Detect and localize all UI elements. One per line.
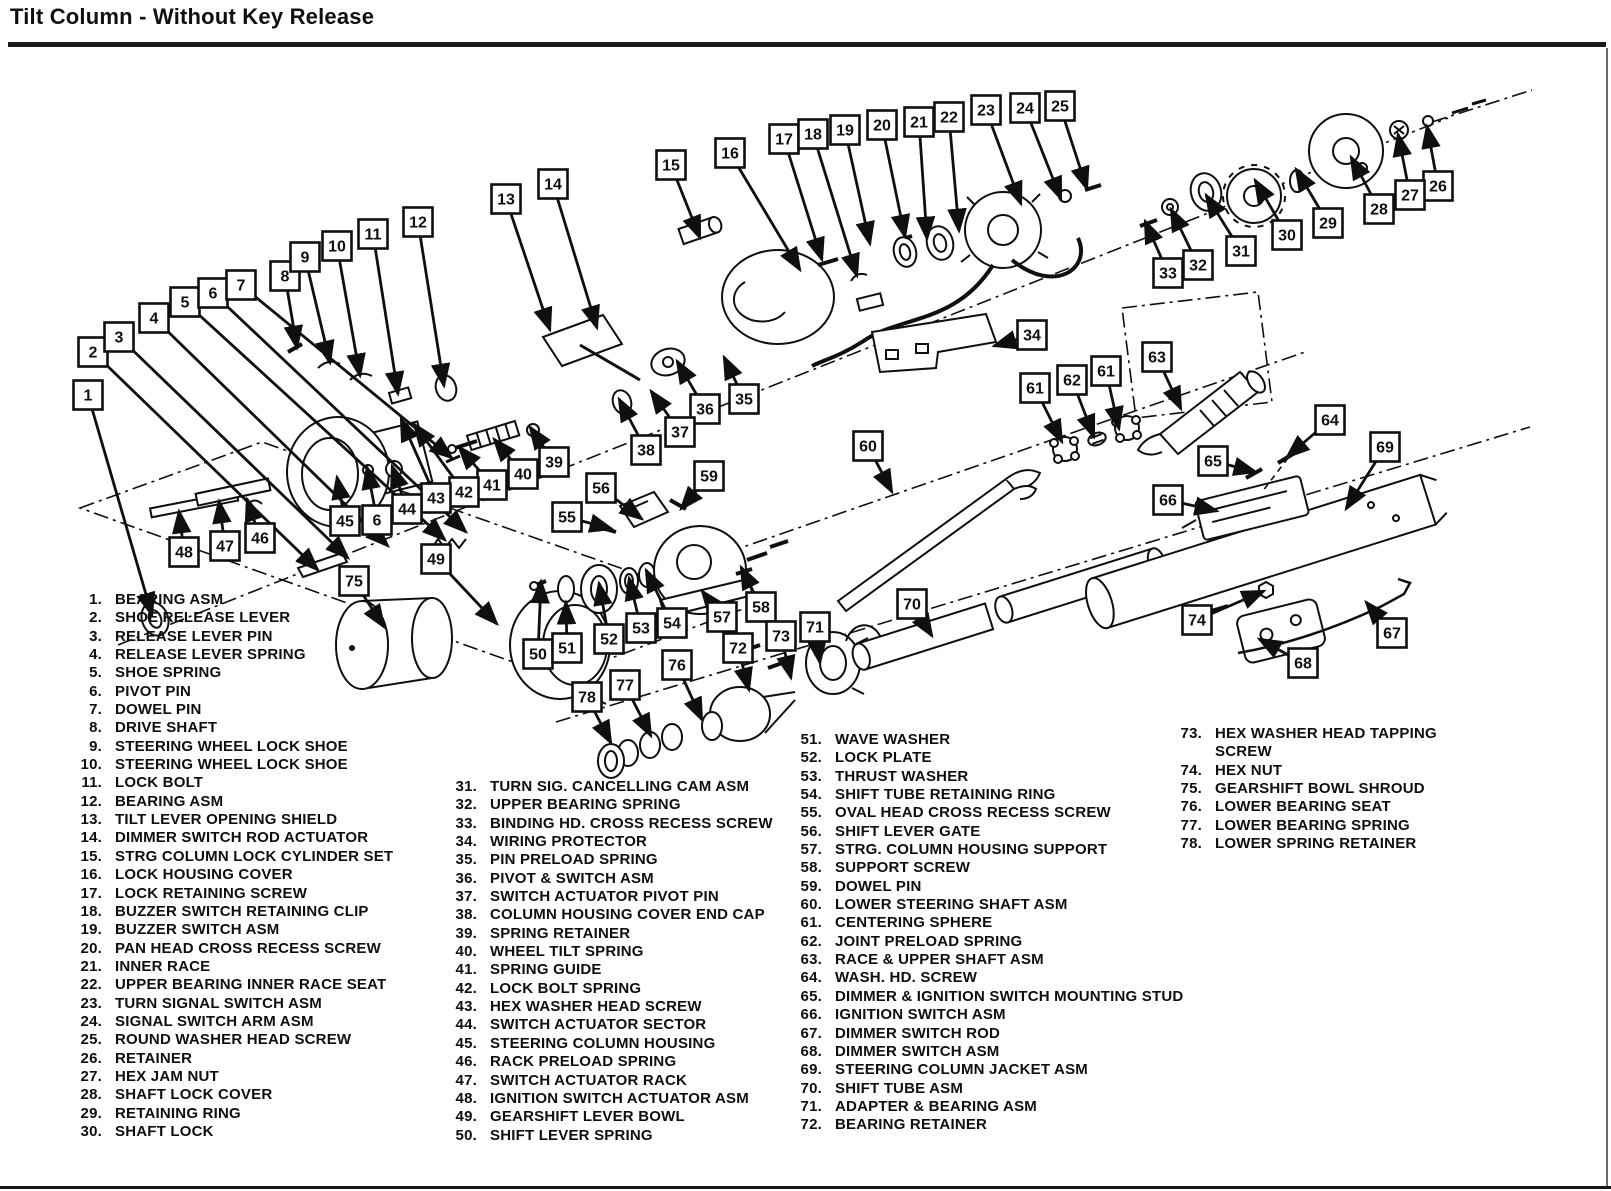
svg-text:16: 16 (721, 146, 739, 163)
part-label: JOINT PRELOAD SPRING (835, 933, 1022, 951)
callout-47: 47 (211, 532, 240, 561)
leader-arrow (882, 125, 905, 237)
part-label: UPPER BEARING INNER RACE SEAT (115, 976, 386, 994)
parts-list-item: 15.STRG COLUMN LOCK CYLINDER SET (40, 848, 420, 866)
callout-28: 28 (1365, 195, 1394, 224)
part-label: RACE & UPPER SHAFT ASM (835, 951, 1044, 969)
parts-list-item: 19.BUZZER SWITCH ASM (40, 921, 420, 939)
parts-list-item: 76.LOWER BEARING SEAT (1140, 798, 1460, 816)
title-rule (8, 42, 1606, 47)
part-number: 33. (415, 815, 477, 833)
part-number: 74. (1140, 762, 1202, 780)
part-label: BEARING RETAINER (835, 1116, 987, 1134)
part-label: TURN SIG. CANCELLING CAM ASM (490, 778, 749, 796)
svg-text:34: 34 (1023, 328, 1041, 345)
svg-text:45: 45 (336, 514, 354, 531)
callout-46: 46 (246, 524, 275, 553)
part-number: 36. (415, 870, 477, 888)
parts-list-item: 24.SIGNAL SWITCH ARM ASM (40, 1013, 420, 1031)
parts-list-item: 1.BEARING ASM (40, 591, 420, 609)
part-number: 5. (40, 664, 102, 682)
part-label: STEERING WHEEL LOCK SHOE (115, 756, 348, 774)
part-number: 25. (40, 1031, 102, 1049)
part-label: PAN HEAD CROSS RECESS SCREW (115, 940, 381, 958)
svg-text:36: 36 (696, 402, 714, 419)
svg-text:77: 77 (616, 678, 634, 695)
svg-text:44: 44 (398, 502, 416, 519)
part-label: BEARING ASM (115, 591, 223, 609)
part-number: 59. (760, 878, 822, 896)
part-label: SWITCH ACTUATOR RACK (490, 1072, 687, 1090)
callout-32: 32 (1184, 251, 1213, 280)
svg-text:68: 68 (1294, 656, 1312, 673)
part-number: 26. (40, 1050, 102, 1068)
part-label: PIVOT & SWITCH ASM (490, 870, 654, 888)
svg-text:28: 28 (1370, 202, 1388, 219)
parts-list-item: 69.STEERING COLUMN JACKET ASM (760, 1061, 1260, 1079)
part-label: LOCK BOLT SPRING (490, 980, 641, 998)
callout-29: 29 (1314, 209, 1343, 238)
svg-text:61: 61 (1097, 364, 1115, 381)
callout-43: 43 (422, 484, 451, 513)
callout-12: 12 (404, 208, 433, 237)
svg-text:48: 48 (175, 545, 193, 562)
part-label: SHIFT LEVER GATE (835, 823, 980, 841)
part-label: BUZZER SWITCH RETAINING CLIP (115, 903, 369, 921)
part-label: LOCK PLATE (835, 749, 932, 767)
part-label: BEARING ASM (115, 793, 223, 811)
part-number: 69. (760, 1061, 822, 1079)
parts-list-item: 12.BEARING ASM (40, 793, 420, 811)
parts-list-item: 78.LOWER SPRING RETAINER (1140, 835, 1460, 853)
svg-text:64: 64 (1321, 413, 1339, 430)
callout-13: 13 (492, 185, 521, 214)
leader-arrow (418, 222, 444, 386)
part-number: 46. (415, 1053, 477, 1071)
callout-34: 34 (1018, 321, 1047, 350)
part-label: ROUND WASHER HEAD SCREW (115, 1031, 351, 1049)
callout-3: 3 (105, 323, 134, 352)
part-number: 57. (760, 841, 822, 859)
leader-arrow (337, 246, 360, 376)
svg-text:3: 3 (115, 330, 124, 347)
part-label: IGNITION SWITCH ACTUATOR ASM (490, 1090, 749, 1108)
parts-list-item: 23.TURN SIGNAL SWITCH ASM (40, 995, 420, 1013)
callout-6: 6 (199, 279, 228, 308)
callout-40: 40 (509, 460, 538, 489)
part-number: 62. (760, 933, 822, 951)
part-number: 16. (40, 866, 102, 884)
svg-text:18: 18 (804, 127, 822, 144)
callout-11: 11 (359, 220, 388, 249)
svg-text:29: 29 (1319, 216, 1337, 233)
parts-list-item: 8.DRIVE SHAFT (40, 719, 420, 737)
svg-text:17: 17 (775, 132, 793, 149)
callout-65: 65 (1199, 447, 1228, 476)
parts-list-column-4: 73.HEX WASHER HEAD TAPPING SCREW74.HEX N… (1140, 725, 1460, 853)
parts-list-item: 40.WHEEL TILT SPRING (415, 943, 795, 961)
callout-78: 78 (573, 683, 602, 712)
part-number: 56. (760, 823, 822, 841)
part-label: LOWER STEERING SHAFT ASM (835, 896, 1068, 914)
parts-list-item: 36.PIVOT & SWITCH ASM (415, 870, 795, 888)
part-number: 23. (40, 995, 102, 1013)
svg-text:14: 14 (544, 177, 562, 194)
parts-list-item: 74.HEX NUT (1140, 762, 1460, 780)
svg-text:2: 2 (89, 345, 98, 362)
parts-list-item: 22.UPPER BEARING INNER RACE SEAT (40, 976, 420, 994)
svg-text:5: 5 (181, 295, 190, 312)
part-number: 39. (415, 925, 477, 943)
parts-list-item: 6.PIVOT PIN (40, 683, 420, 701)
svg-text:50: 50 (529, 647, 547, 664)
part-label: CENTERING SPHERE (835, 914, 992, 932)
parts-list-item: 49.GEARSHIFT LEVER BOWL (415, 1108, 795, 1126)
svg-text:25: 25 (1051, 99, 1069, 116)
part-label: UPPER BEARING SPRING (490, 796, 681, 814)
svg-text:43: 43 (427, 491, 445, 508)
part-label: HEX JAM NUT (115, 1068, 219, 1086)
part-label: DRIVE SHAFT (115, 719, 217, 737)
part-label: GEARSHIFT BOWL SHROUD (1215, 780, 1425, 798)
parts-list-item: 28.SHAFT LOCK COVER (40, 1086, 420, 1104)
parts-list-item: 31.TURN SIG. CANCELLING CAM ASM (415, 778, 795, 796)
callout-2: 2 (79, 338, 108, 367)
parts-list-item: 29.RETAINING RING (40, 1105, 420, 1123)
page-edge-bottom (0, 1186, 1611, 1189)
svg-text:11: 11 (365, 227, 382, 244)
parts-list-item: 42.LOCK BOLT SPRING (415, 980, 795, 998)
callout-30: 30 (1273, 221, 1302, 250)
parts-list-item: 27.HEX JAM NUT (40, 1068, 420, 1086)
svg-text:75: 75 (345, 574, 363, 591)
part-number: 2. (40, 609, 102, 627)
parts-list-item: 3.RELEASE LEVER PIN (40, 628, 420, 646)
part-label: SUPPORT SCREW (835, 859, 970, 877)
parts-list-item: 38.COLUMN HOUSING COVER END CAP (415, 906, 795, 924)
part-number: 40. (415, 943, 477, 961)
leader-arrow (93, 352, 318, 570)
part-label: INNER RACE (115, 958, 210, 976)
callout-33: 33 (1154, 259, 1183, 288)
parts-list-item: 43.HEX WASHER HEAD SCREW (415, 998, 795, 1016)
callout-70: 70 (898, 590, 927, 619)
leader-arrow (784, 139, 822, 260)
callout-50: 50 (524, 640, 553, 669)
part-label: LOWER BEARING SPRING (1215, 817, 1410, 835)
part-number: 32. (415, 796, 477, 814)
part-number: 6. (40, 683, 102, 701)
part-number: 30. (40, 1123, 102, 1141)
callout-60: 60 (854, 432, 883, 461)
part-label: STEERING COLUMN HOUSING (490, 1035, 715, 1053)
part-number: 54. (760, 786, 822, 804)
callout-61: 61 (1021, 374, 1050, 403)
parts-list-item: 18.BUZZER SWITCH RETAINING CLIP (40, 903, 420, 921)
svg-text:52: 52 (600, 632, 618, 649)
part-label: RELEASE LEVER PIN (115, 628, 273, 646)
callout-16: 16 (716, 139, 745, 168)
part-number: 13. (40, 811, 102, 829)
part-label: WASH. HD. SCREW (835, 969, 977, 987)
part-number: 71. (760, 1098, 822, 1116)
svg-text:57: 57 (713, 610, 731, 627)
callout-51: 51 (553, 634, 582, 663)
part-number: 66. (760, 1006, 822, 1024)
parts-list-item: 21.INNER RACE (40, 958, 420, 976)
part-label: HEX WASHER HEAD TAPPING SCREW (1215, 725, 1455, 762)
part-number: 3. (40, 628, 102, 646)
parts-list-item: 61.CENTERING SPHERE (760, 914, 1260, 932)
callout-39: 39 (540, 448, 569, 477)
callout-64: 64 (1316, 406, 1345, 435)
page: 1234567891011121314151617181920212223242… (0, 0, 1611, 1191)
svg-text:40: 40 (514, 467, 532, 484)
callout-17: 17 (770, 125, 799, 154)
leader-arrow (845, 130, 870, 244)
part-label: PIN PRELOAD SPRING (490, 851, 658, 869)
part-label: DIMMER & IGNITION SWITCH MOUNTING STUD (835, 988, 1183, 1006)
part-label: STRG COLUMN LOCK CYLINDER SET (115, 848, 393, 866)
svg-text:27: 27 (1401, 188, 1419, 205)
callout-45: 45 (331, 507, 360, 536)
leader-arrow (553, 184, 597, 328)
part-number: 7. (40, 701, 102, 719)
part-label: RACK PRELOAD SPRING (490, 1053, 676, 1071)
part-label: BINDING HD. CROSS RECESS SCREW (490, 815, 773, 833)
parts-list-item: 68.DIMMER SWITCH ASM (760, 1043, 1260, 1061)
part-label: DIMMER SWITCH ROD (835, 1025, 1000, 1043)
part-label: SHIFT LEVER SPRING (490, 1127, 653, 1145)
part-label: STEERING COLUMN JACKET ASM (835, 1061, 1088, 1079)
parts-list-item: 41.SPRING GUIDE (415, 961, 795, 979)
svg-text:61: 61 (1026, 381, 1044, 398)
part-number: 68. (760, 1043, 822, 1061)
leader-arrow (506, 199, 550, 330)
part-number: 61. (760, 914, 822, 932)
callout-77: 77 (611, 671, 640, 700)
callout-15: 15 (657, 151, 686, 180)
part-label: HEX WASHER HEAD SCREW (490, 998, 702, 1016)
part-number: 64. (760, 969, 822, 987)
parts-list-item: 46.RACK PRELOAD SPRING (415, 1053, 795, 1071)
callout-41: 41 (478, 471, 507, 500)
callout-66: 66 (1154, 486, 1183, 515)
callout-68: 68 (1289, 649, 1318, 678)
part-number: 43. (415, 998, 477, 1016)
svg-text:46: 46 (251, 531, 269, 548)
svg-text:74: 74 (1188, 613, 1206, 630)
part-label: RETAINER (115, 1050, 192, 1068)
svg-text:23: 23 (977, 103, 995, 120)
page-edge-right (1606, 48, 1608, 1187)
parts-list-item: 71.ADAPTER & BEARING ASM (760, 1098, 1260, 1116)
part-label: SHAFT LOCK COVER (115, 1086, 272, 1104)
svg-text:7: 7 (237, 278, 246, 295)
callout-72: 72 (724, 634, 753, 663)
part-number: 28. (40, 1086, 102, 1104)
svg-text:67: 67 (1383, 626, 1401, 643)
part-label: LOCK BOLT (115, 774, 203, 792)
part-number: 24. (40, 1013, 102, 1031)
parts-list-item: 10.STEERING WHEEL LOCK SHOE (40, 756, 420, 774)
callout-74: 74 (1183, 606, 1212, 635)
parts-list-item: 16.LOCK HOUSING COVER (40, 866, 420, 884)
part-number: 31. (415, 778, 477, 796)
callout-63: 63 (1143, 343, 1172, 372)
callout-44: 44 (393, 495, 422, 524)
svg-text:10: 10 (328, 239, 346, 256)
part-label: SPRING GUIDE (490, 961, 602, 979)
parts-list-item: 9.STEERING WHEEL LOCK SHOE (40, 738, 420, 756)
callout-76: 76 (663, 651, 692, 680)
svg-text:24: 24 (1016, 101, 1034, 118)
part-number: 35. (415, 851, 477, 869)
parts-list-item: 2.SHOE RELEASE LEVER (40, 609, 420, 627)
svg-text:73: 73 (772, 629, 790, 646)
part-number: 4. (40, 646, 102, 664)
parts-list-item: 73.HEX WASHER HEAD TAPPING SCREW (1140, 725, 1460, 762)
part-label: STEERING WHEEL LOCK SHOE (115, 738, 348, 756)
part-label: DOWEL PIN (835, 878, 922, 896)
callout-5: 5 (171, 288, 200, 317)
callout-26: 26 (1424, 172, 1453, 201)
svg-text:9: 9 (301, 250, 310, 267)
svg-text:58: 58 (752, 600, 770, 617)
callout-42: 42 (450, 478, 479, 507)
parts-list-item: 4.RELEASE LEVER SPRING (40, 646, 420, 664)
parts-list-item: 64.WASH. HD. SCREW (760, 969, 1260, 987)
part-label: PIVOT PIN (115, 683, 191, 701)
callout-38: 38 (632, 436, 661, 465)
parts-list-item: 44.SWITCH ACTUATOR SECTOR (415, 1016, 795, 1034)
svg-text:33: 33 (1159, 266, 1177, 283)
callout-9: 9 (291, 243, 320, 272)
svg-text:72: 72 (729, 641, 747, 658)
svg-text:47: 47 (216, 539, 234, 556)
svg-text:35: 35 (735, 392, 753, 409)
part-label: LOWER BEARING SEAT (1215, 798, 1391, 816)
part-label: WHEEL TILT SPRING (490, 943, 644, 961)
part-label: SPRING RETAINER (490, 925, 630, 943)
callout-52: 52 (595, 625, 624, 654)
part-label: TURN SIGNAL SWITCH ASM (115, 995, 322, 1013)
part-number: 1. (40, 591, 102, 609)
callout-27: 27 (1396, 181, 1425, 210)
part-number: 52. (760, 749, 822, 767)
leader-arrow (919, 122, 927, 239)
parts-list-item: 70.SHIFT TUBE ASM (760, 1080, 1260, 1098)
svg-text:30: 30 (1278, 228, 1296, 245)
svg-text:41: 41 (483, 478, 501, 495)
page-title: Tilt Column - Without Key Release (10, 4, 374, 30)
parts-list-item: 13.TILT LEVER OPENING SHIELD (40, 811, 420, 829)
part-number: 17. (40, 885, 102, 903)
callout-62: 62 (1058, 366, 1087, 395)
parts-list-item: 72.BEARING RETAINER (760, 1116, 1260, 1134)
part-number: 48. (415, 1090, 477, 1108)
part-number: 45. (415, 1035, 477, 1053)
part-label: STRG. COLUMN HOUSING SUPPORT (835, 841, 1107, 859)
parts-list-item: 65.DIMMER & IGNITION SWITCH MOUNTING STU… (760, 988, 1260, 1006)
callout-14: 14 (539, 170, 568, 199)
callout-37: 37 (666, 418, 695, 447)
part-number: 65. (760, 988, 822, 1006)
part-label: SIGNAL SWITCH ARM ASM (115, 1013, 314, 1031)
part-label: ADAPTER & BEARING ASM (835, 1098, 1037, 1116)
parts-list-item: 75.GEARSHIFT BOWL SHROUD (1140, 780, 1460, 798)
svg-text:6: 6 (209, 286, 218, 303)
callout-35: 35 (730, 385, 759, 414)
svg-text:1: 1 (84, 388, 93, 405)
svg-text:63: 63 (1148, 350, 1166, 367)
part-number: 53. (760, 768, 822, 786)
svg-text:38: 38 (637, 443, 655, 460)
svg-text:55: 55 (558, 510, 576, 527)
callout-69: 69 (1371, 433, 1400, 462)
callout-1: 1 (74, 381, 103, 410)
parts-list-item: 35.PIN PRELOAD SPRING (415, 851, 795, 869)
callout-59: 59 (695, 462, 724, 491)
part-number: 20. (40, 940, 102, 958)
part-number: 67. (760, 1025, 822, 1043)
parts-list-item: 14.DIMMER SWITCH ROD ACTUATOR (40, 829, 420, 847)
part-number: 34. (415, 833, 477, 851)
part-number: 9. (40, 738, 102, 756)
part-label: SHAFT LOCK (115, 1123, 214, 1141)
part-label: DOWEL PIN (115, 701, 202, 719)
parts-list-item: 30.SHAFT LOCK (40, 1123, 420, 1141)
callout-7: 7 (227, 271, 256, 300)
part-number: 8. (40, 719, 102, 737)
svg-text:13: 13 (497, 192, 515, 209)
callout-58: 58 (747, 593, 776, 622)
part-number: 63. (760, 951, 822, 969)
part-label: COLUMN HOUSING COVER END CAP (490, 906, 765, 924)
svg-text:22: 22 (940, 110, 958, 127)
part-number: 47. (415, 1072, 477, 1090)
part-number: 38. (415, 906, 477, 924)
part-label: TILT LEVER OPENING SHIELD (115, 811, 337, 829)
part-number: 77. (1140, 817, 1202, 835)
callout-54: 54 (658, 609, 687, 638)
svg-text:32: 32 (1189, 258, 1207, 275)
svg-text:6: 6 (373, 513, 382, 530)
part-label: SHOE RELEASE LEVER (115, 609, 290, 627)
parts-list-item: 37.SWITCH ACTUATOR PIVOT PIN (415, 888, 795, 906)
part-label: RETAINING RING (115, 1105, 241, 1123)
part-number: 29. (40, 1105, 102, 1123)
part-label: LOCK HOUSING COVER (115, 866, 293, 884)
svg-text:21: 21 (910, 115, 928, 132)
svg-text:65: 65 (1204, 454, 1222, 471)
part-label: SHIFT TUBE ASM (835, 1080, 963, 1098)
part-number: 49. (415, 1108, 477, 1126)
part-number: 78. (1140, 835, 1202, 853)
part-label: HEX NUT (1215, 762, 1282, 780)
svg-text:42: 42 (455, 485, 473, 502)
svg-text:51: 51 (558, 641, 576, 658)
svg-text:31: 31 (1232, 244, 1250, 261)
parts-list-item: 50.SHIFT LEVER SPRING (415, 1127, 795, 1145)
callout-23: 23 (972, 96, 1001, 125)
callout-48: 48 (170, 538, 199, 567)
callout-19: 19 (831, 116, 860, 145)
leader-arrow (949, 117, 959, 231)
svg-text:49: 49 (427, 552, 445, 569)
part-number: 11. (40, 774, 102, 792)
svg-text:71: 71 (806, 620, 824, 637)
